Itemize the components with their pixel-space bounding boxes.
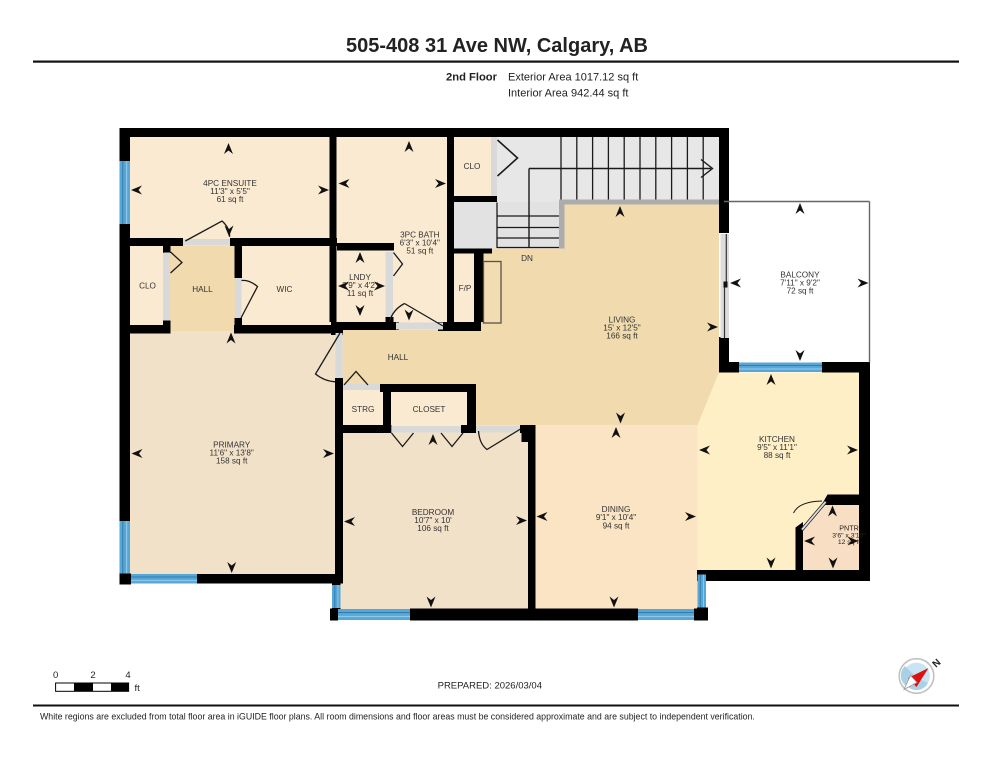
svg-text:PNTR: PNTR xyxy=(839,524,859,533)
svg-text:2: 2 xyxy=(90,670,95,681)
svg-text:61 sq ft: 61 sq ft xyxy=(217,195,245,204)
svg-text:PREPARED: 2026/03/04: PREPARED: 2026/03/04 xyxy=(438,681,542,692)
svg-text:0: 0 xyxy=(53,670,58,681)
svg-text:51 sq ft: 51 sq ft xyxy=(406,247,434,256)
svg-text:11 sq ft: 11 sq ft xyxy=(347,289,374,298)
svg-text:2nd Floor: 2nd Floor xyxy=(446,72,498,84)
svg-text:505-408 31 Ave NW, Calgary, AB: 505-408 31 Ave NW, Calgary, AB xyxy=(346,35,648,57)
svg-text:CLO: CLO xyxy=(139,282,156,291)
svg-text:166 sq ft: 166 sq ft xyxy=(606,332,638,341)
svg-text:CLOSET: CLOSET xyxy=(413,405,446,414)
svg-text:CLO: CLO xyxy=(464,162,481,171)
svg-text:Exterior Area 1017.12 sq ft: Exterior Area 1017.12 sq ft xyxy=(508,72,638,84)
svg-text:106 sq ft: 106 sq ft xyxy=(417,524,449,533)
svg-text:White regions are excluded fro: White regions are excluded from total fl… xyxy=(40,712,755,722)
svg-text:4: 4 xyxy=(125,670,130,681)
svg-text:HALL: HALL xyxy=(192,285,213,294)
svg-text:HALL: HALL xyxy=(388,353,409,362)
svg-text:Interior Area 942.44 sq ft: Interior Area 942.44 sq ft xyxy=(508,88,628,100)
svg-text:WIC: WIC xyxy=(277,285,293,294)
svg-text:158 sq ft: 158 sq ft xyxy=(216,457,248,466)
svg-text:88 sq ft: 88 sq ft xyxy=(764,451,792,460)
svg-text:72 sq ft: 72 sq ft xyxy=(787,287,815,296)
svg-text:STRG: STRG xyxy=(352,405,375,414)
svg-text:DN: DN xyxy=(521,254,533,263)
svg-text:ft: ft xyxy=(135,683,141,694)
svg-text:12 sq ft: 12 sq ft xyxy=(838,539,860,546)
svg-text:F/P: F/P xyxy=(459,284,472,293)
svg-text:94 sq ft: 94 sq ft xyxy=(603,521,631,530)
